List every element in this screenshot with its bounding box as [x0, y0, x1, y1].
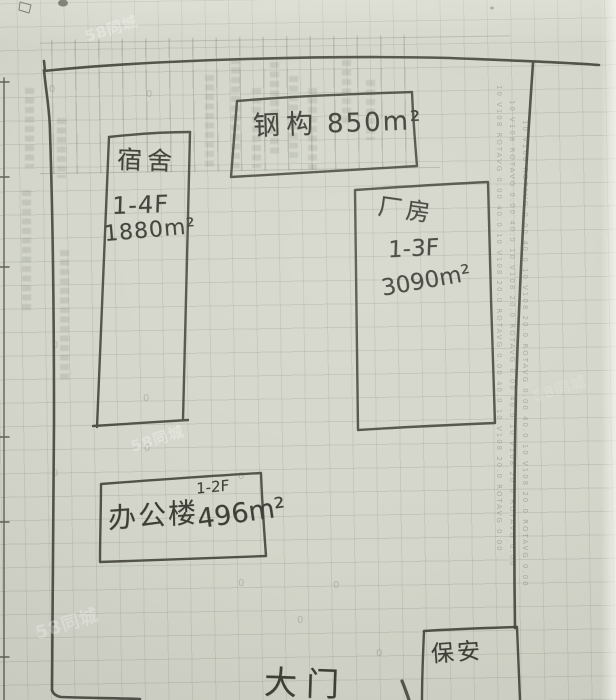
dormitory-name: 宿舍	[117, 147, 178, 174]
ink-smudge	[19, 0, 494, 13]
guard-name: 保安	[430, 640, 483, 667]
steel-structure-name: 钢构	[253, 109, 320, 142]
factory-name: 厂房	[377, 194, 436, 226]
dormitory-floors: 1-4F	[112, 192, 170, 218]
gate-label: 大门	[263, 666, 348, 700]
photo-of-site-plan-sketch: 10 V108 ROTAVG 0.00 40.0 10 V108 20.0 RO…	[0, 0, 616, 700]
office-name: 办公楼	[108, 499, 198, 533]
steel-structure-label: 钢构850m²	[253, 107, 423, 140]
dormitory-box-outline	[93, 132, 190, 427]
paper-margin-line	[0, 78, 9, 700]
factory-floors: 1-3F	[388, 237, 440, 263]
pencil-linework	[0, 0, 616, 700]
gate-arrow-icon	[402, 681, 409, 700]
office-floors: 1-2F	[196, 478, 229, 497]
steel-structure-area: 850m²	[327, 106, 423, 139]
